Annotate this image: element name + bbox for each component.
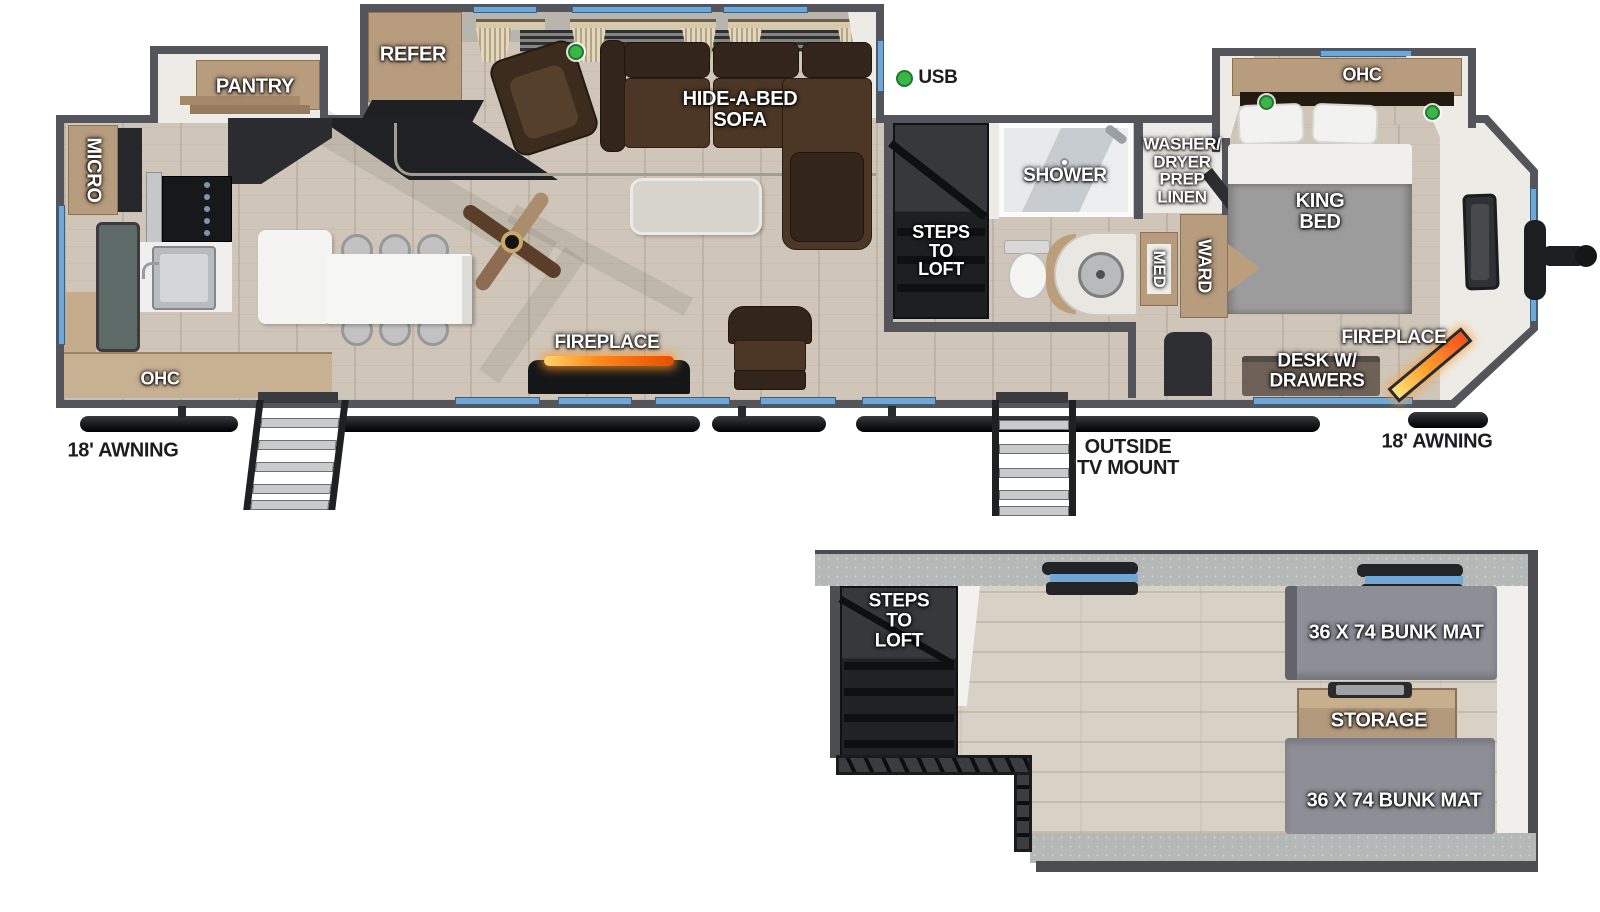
area-rug [630,178,762,235]
interior-wall [884,119,893,332]
bath-sink-center [1096,270,1105,279]
tv-screen [1471,204,1489,280]
bunk-mat-bottom [1285,738,1495,834]
kitchen-ohc-label: OHC [140,370,179,389]
range-burner [204,218,210,224]
entry-steps [243,400,349,510]
usb-indicator-icon [1259,95,1274,110]
awning-arm [888,406,896,418]
window [473,6,537,13]
awning-right-label: 18' AWNING [1381,432,1492,453]
steps-to-loft-label: STEPS TO LOFT [912,223,970,279]
stair-tread [844,740,954,748]
hide-a-bed-sofa-label: HIDE-A-BED SOFA [683,89,798,131]
bedroom-fireplace-label: FIREPLACE [1342,328,1447,348]
stair-tread [844,714,954,722]
range-burner [204,194,210,200]
island-side-face [462,256,472,324]
bedroom-slide-side [1468,56,1476,128]
bath-wall [884,322,1134,332]
awning-rail [856,416,1320,432]
kitchen-island [258,230,332,324]
toilet-bowl [1008,252,1048,300]
usb-legend-icon [896,70,913,87]
desk-label: DESK W/ DRAWERS [1269,351,1364,391]
king-bed-label: KING BED [1296,191,1345,233]
window [1253,397,1413,405]
window [862,397,936,405]
faucet-icon [142,262,159,279]
range-burner [204,230,210,236]
interior-wall [989,123,999,219]
closet-wall [1134,119,1143,219]
living-fireplace-label: FIREPLACE [555,333,660,353]
window [655,397,730,405]
awning-arm [178,406,186,418]
awning-rail [338,416,700,432]
bedroom-door [1164,332,1212,396]
range-burner [204,206,210,212]
bedroom-wall [1128,322,1136,398]
stair-tread [897,284,985,292]
refer-label: REFER [380,45,446,66]
awning-rail [1408,412,1488,428]
range-oven [162,176,232,242]
window [877,40,884,92]
bedroom-ohc-label: OHC [1342,66,1381,85]
recliner-chair [728,306,812,344]
window [1320,50,1412,57]
med-label: MED [1150,251,1168,288]
entry-steps [992,400,1076,516]
loft-railing [836,755,1032,775]
awning-left-label: 18' AWNING [67,441,178,462]
shower-label: SHOWER [1023,166,1107,186]
awning-arm [738,406,746,418]
outside-tv-mount-label: OUTSIDE TV MOUNT [1077,437,1179,479]
glass-door-closet [96,222,140,352]
bunk-mat-bottom-label: 36 X 74 BUNK MAT [1307,791,1482,812]
usb-indicator-icon [568,44,584,60]
window [572,6,712,13]
bed-sheet [1228,144,1412,186]
recliner-footrest [734,370,806,390]
kitchen-sink-basin [160,254,208,302]
window [58,205,65,345]
storage-label: STORAGE [1331,711,1427,732]
loft-side-wall [1497,586,1528,833]
pantry-label: PANTRY [216,77,294,98]
tall-appliance [118,128,142,212]
stair-tread [844,662,954,670]
usb-legend-label: USB [918,68,957,88]
pantry-shelf-step [190,105,310,114]
loft-left-wall [830,586,840,758]
recliner-seat [734,340,806,372]
awning-rail [80,416,238,432]
micro-label: MICRO [83,137,104,202]
bunk-mat-top-edge [1285,586,1297,680]
window [760,397,836,405]
sofa-back-cushion [713,42,799,78]
sofa-armrest [600,40,626,152]
range-burner [204,182,210,188]
loft-steps-label: STEPS TO LOFT [869,591,930,650]
kitchen-island [326,254,472,324]
loft-right-edge [1528,550,1538,872]
bed-pillow [1237,103,1304,145]
sofa-chaise-cushion [790,152,864,242]
window [723,6,808,13]
usb-indicator-icon [1425,105,1440,120]
stair-tread [844,688,954,696]
fireplace-flame [544,356,674,366]
bunk-mat-top-label: 36 X 74 BUNK MAT [1309,623,1484,644]
awning-rail [712,416,826,432]
sofa-back-cushion [624,42,710,78]
loft-railing [1014,772,1032,852]
loft-rear-wall [1030,833,1536,863]
floorplan-canvas: MICRO PANTRY REFER HIDE-A-BED SOFA USB S… [0,0,1600,912]
washer-dryer-label: WASHER/ DRYER PREP LINEN [1143,136,1220,207]
window [558,397,632,405]
bed-pillow [1311,103,1378,145]
range-side-panel [146,172,162,244]
loft-rear-edge [1036,861,1536,872]
ward-label: WARD [1195,239,1214,293]
sofa-back-cushion [802,42,872,78]
window [455,397,540,405]
storage-tray-inner [1336,685,1404,695]
